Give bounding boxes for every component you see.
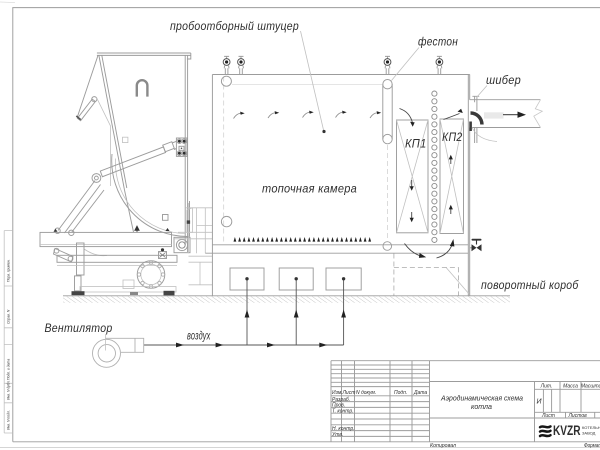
svg-text:Перв. примен.: Перв. примен. — [7, 259, 11, 282]
svg-text:Дата: Дата — [413, 390, 427, 396]
svg-text:котла: котла — [471, 402, 492, 411]
svg-text:шибер: шибер — [486, 73, 521, 87]
svg-text:Лит.: Лит. — [540, 384, 553, 390]
svg-text:Изм.: Изм. — [332, 390, 343, 396]
svg-text:КП1: КП1 — [405, 137, 427, 151]
svg-text:Масштаб: Масштаб — [581, 384, 600, 390]
svg-text:Утв.: Утв. — [332, 432, 343, 438]
svg-text:Т. контр.: Т. контр. — [332, 408, 354, 414]
svg-text:воздух: воздух — [187, 329, 211, 343]
svg-text:топочная камера: топочная камера — [262, 182, 357, 196]
svg-text:Листов: Листов — [568, 413, 588, 419]
svg-text:поворотный короб: поворотный короб — [481, 278, 579, 292]
svg-text:ЗАВОД: ЗАВОД — [582, 430, 596, 435]
svg-text:И: И — [537, 399, 543, 406]
svg-text:Справ. N: Справ. N — [7, 309, 11, 324]
svg-text:Лист: Лист — [342, 390, 356, 396]
svg-text:Подп.: Подп. — [394, 390, 407, 396]
svg-text:Масса: Масса — [563, 384, 578, 390]
svg-text:Формат: Формат — [584, 443, 600, 449]
svg-text:пробоотборный штуцер: пробоотборный штуцер — [170, 19, 299, 33]
svg-text:Инв. N дубл.: Инв. N дубл. — [7, 380, 11, 400]
svg-text:Вентилятор: Вентилятор — [45, 321, 113, 335]
svg-text:КП2: КП2 — [442, 130, 463, 144]
svg-text:N докум.: N докум. — [356, 390, 376, 396]
svg-text:фестон: фестон — [418, 35, 458, 49]
svg-text:KVZR: KVZR — [553, 423, 581, 438]
svg-text:Инв. N подл.: Инв. N подл. — [7, 410, 11, 430]
svg-text:Подп. и дата: Подп. и дата — [7, 359, 11, 380]
svg-text:Лист: Лист — [541, 413, 555, 419]
svg-text:Копировал: Копировал — [430, 443, 456, 449]
svg-text:КОТЕЛЬНЫЙ: КОТЕЛЬНЫЙ — [582, 425, 600, 430]
